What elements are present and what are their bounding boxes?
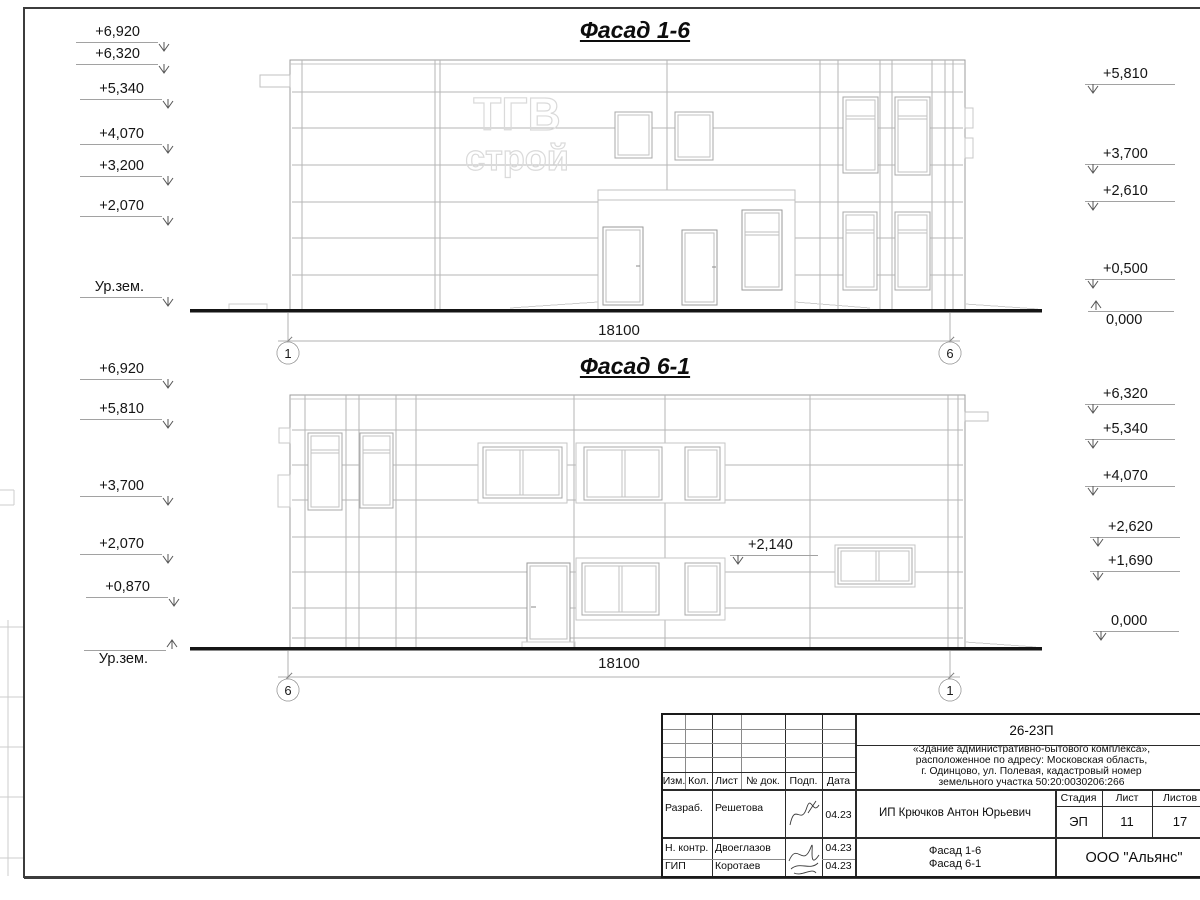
roof-protrusion xyxy=(260,75,290,87)
sheet-label: Лист xyxy=(1102,790,1152,806)
elevation-mark: +2,070 xyxy=(80,536,162,555)
row-role: ГИП xyxy=(665,859,711,873)
frame-top xyxy=(24,7,1200,9)
door xyxy=(527,563,570,642)
elevation-mark: +6,320 xyxy=(1085,386,1175,405)
elevation-arrow-icon xyxy=(147,175,161,187)
elevation-arrow-up-icon xyxy=(1089,299,1103,311)
facade-6-1-drawing: 18100 6 1 xyxy=(170,385,1060,715)
axis-number: 1 xyxy=(946,683,953,698)
wall-element xyxy=(279,428,290,443)
elevation-arrow-icon xyxy=(147,98,161,110)
elevation-arrow-icon xyxy=(1086,403,1100,415)
facade-6-1-title-text: Фасад 6-1 xyxy=(580,353,690,379)
logo-tgv-stroy: ТГВ строй xyxy=(465,88,569,178)
facade-1-6-drawing: ТГВ строй xyxy=(170,50,1060,380)
client-name: ИП Крючков Антон Юрьевич xyxy=(855,791,1055,835)
project-description: «Здание административно-бытового комплек… xyxy=(855,746,1200,788)
elevation-arrow-icon xyxy=(147,378,161,390)
elevation-arrow-icon xyxy=(731,554,745,566)
elevation-mark: +3,200 xyxy=(80,158,162,177)
elevation-mark: +6,320 xyxy=(76,46,158,65)
elevation-mark: +2,070 xyxy=(80,198,162,217)
glazed-door xyxy=(742,210,782,290)
sheet-number: 11 xyxy=(1102,806,1152,837)
elevation-mark: +4,070 xyxy=(80,126,162,145)
elevation-mark: +6,920 xyxy=(76,24,158,43)
elevation-arrow-icon xyxy=(1091,536,1105,548)
signature xyxy=(786,839,822,877)
company-name: ООО "Альянс" xyxy=(1055,839,1200,876)
elevation-arrow-icon xyxy=(147,143,161,155)
col-list: Лист xyxy=(712,773,741,789)
stage-value: ЭП xyxy=(1055,806,1102,837)
svg-text:ТГВ: ТГВ xyxy=(473,88,560,140)
facade-1-6-title-text: Фасад 1-6 xyxy=(580,17,690,43)
elevation-arrow-up-icon xyxy=(151,638,165,650)
col-podp: Подп. xyxy=(785,773,822,789)
elevation-mark: 0,000 xyxy=(1093,613,1179,632)
elevation-mark-inner: +2,140 xyxy=(730,537,818,556)
row-name: Коротаев xyxy=(715,859,785,873)
col-izm: Изм. xyxy=(663,773,685,789)
axis-number: 6 xyxy=(284,683,291,698)
elevation-mark: +2,610 xyxy=(1085,183,1175,202)
axis-number: 1 xyxy=(284,346,291,361)
elevation-arrow-icon xyxy=(1086,200,1100,212)
row-role: Н. контр. xyxy=(665,841,713,855)
signature xyxy=(786,793,822,837)
row-name: Решетова xyxy=(715,801,785,815)
elevation-mark-ground: Ур.зем. xyxy=(84,650,166,669)
elevation-arrow-icon xyxy=(1091,570,1105,582)
sheets-total: 17 xyxy=(1152,806,1200,837)
elevation-mark: +5,810 xyxy=(1085,66,1175,85)
title-block: Изм. Кол. Лист № док. Подп. Дата Разраб.… xyxy=(661,713,1200,878)
elevation-arrow-icon xyxy=(153,596,167,608)
elevation-arrow-icon xyxy=(147,296,161,308)
facade-1-6-title: Фасад 1-6 xyxy=(505,17,765,44)
elevation-mark: +0,870 xyxy=(86,579,168,598)
row-date: 04.23 xyxy=(822,841,855,855)
elevation-arrow-icon xyxy=(1086,485,1100,497)
stage-label: Стадия xyxy=(1055,790,1102,806)
elevation-mark: +5,810 xyxy=(80,401,162,420)
facade-6-1-title: Фасад 6-1 xyxy=(505,353,765,380)
window xyxy=(835,545,915,587)
elevation-mark: +6,920 xyxy=(80,361,162,380)
col-data: Дата xyxy=(822,773,855,789)
elevation-arrow-icon xyxy=(147,495,161,507)
col-doc: № док. xyxy=(741,773,785,789)
axis-number: 6 xyxy=(946,346,953,361)
elevation-mark-ground: Ур.зем. xyxy=(80,279,162,298)
elevation-mark: +2,620 xyxy=(1090,519,1180,538)
wall-element xyxy=(965,108,973,128)
elevation-arrow-icon xyxy=(147,215,161,227)
row-role: Разраб. xyxy=(665,801,711,815)
sheet-title: Фасад 1-6 Фасад 6-1 xyxy=(855,839,1055,876)
col-kol: Кол. xyxy=(685,773,712,789)
row-date: 04.23 xyxy=(822,808,855,822)
elevation-mark: +3,700 xyxy=(1085,146,1175,165)
roof-protrusion xyxy=(965,412,988,421)
doc-number: 26-23П xyxy=(855,719,1200,741)
row-name: Двоеглазов xyxy=(715,841,785,855)
elevation-mark: +0,500 xyxy=(1085,261,1175,280)
wall-element xyxy=(278,475,290,507)
window xyxy=(582,563,720,615)
elevation-mark: +5,340 xyxy=(80,81,162,100)
elevation-arrow-icon xyxy=(1086,163,1100,175)
dimension-text: 18100 xyxy=(598,322,640,339)
elevation-arrow-icon xyxy=(143,63,157,75)
elevation-arrow-icon xyxy=(1094,630,1108,642)
elevation-arrow-icon xyxy=(1086,278,1100,290)
elevation-mark: +1,690 xyxy=(1090,553,1180,572)
wall-element xyxy=(965,138,973,158)
drawing-sheet: Фасад 1-6 ТГВ строй xyxy=(0,0,1200,900)
elevation-mark-zero: 0,000 xyxy=(1088,311,1174,330)
elevation-mark: +3,700 xyxy=(80,478,162,497)
svg-text:строй: строй xyxy=(465,137,569,178)
dimension-text: 18100 xyxy=(598,655,640,672)
elevation-arrow-icon xyxy=(147,553,161,565)
elevation-arrow-icon xyxy=(1086,438,1100,450)
row-date: 04.23 xyxy=(822,859,855,873)
elevation-arrow-icon xyxy=(1086,83,1100,95)
elevation-mark: +4,070 xyxy=(1085,468,1175,487)
sheets-label: Листов xyxy=(1152,790,1200,806)
left-margin-stamp xyxy=(0,0,24,900)
elevation-mark: +5,340 xyxy=(1085,421,1175,440)
elevation-arrow-icon xyxy=(147,418,161,430)
